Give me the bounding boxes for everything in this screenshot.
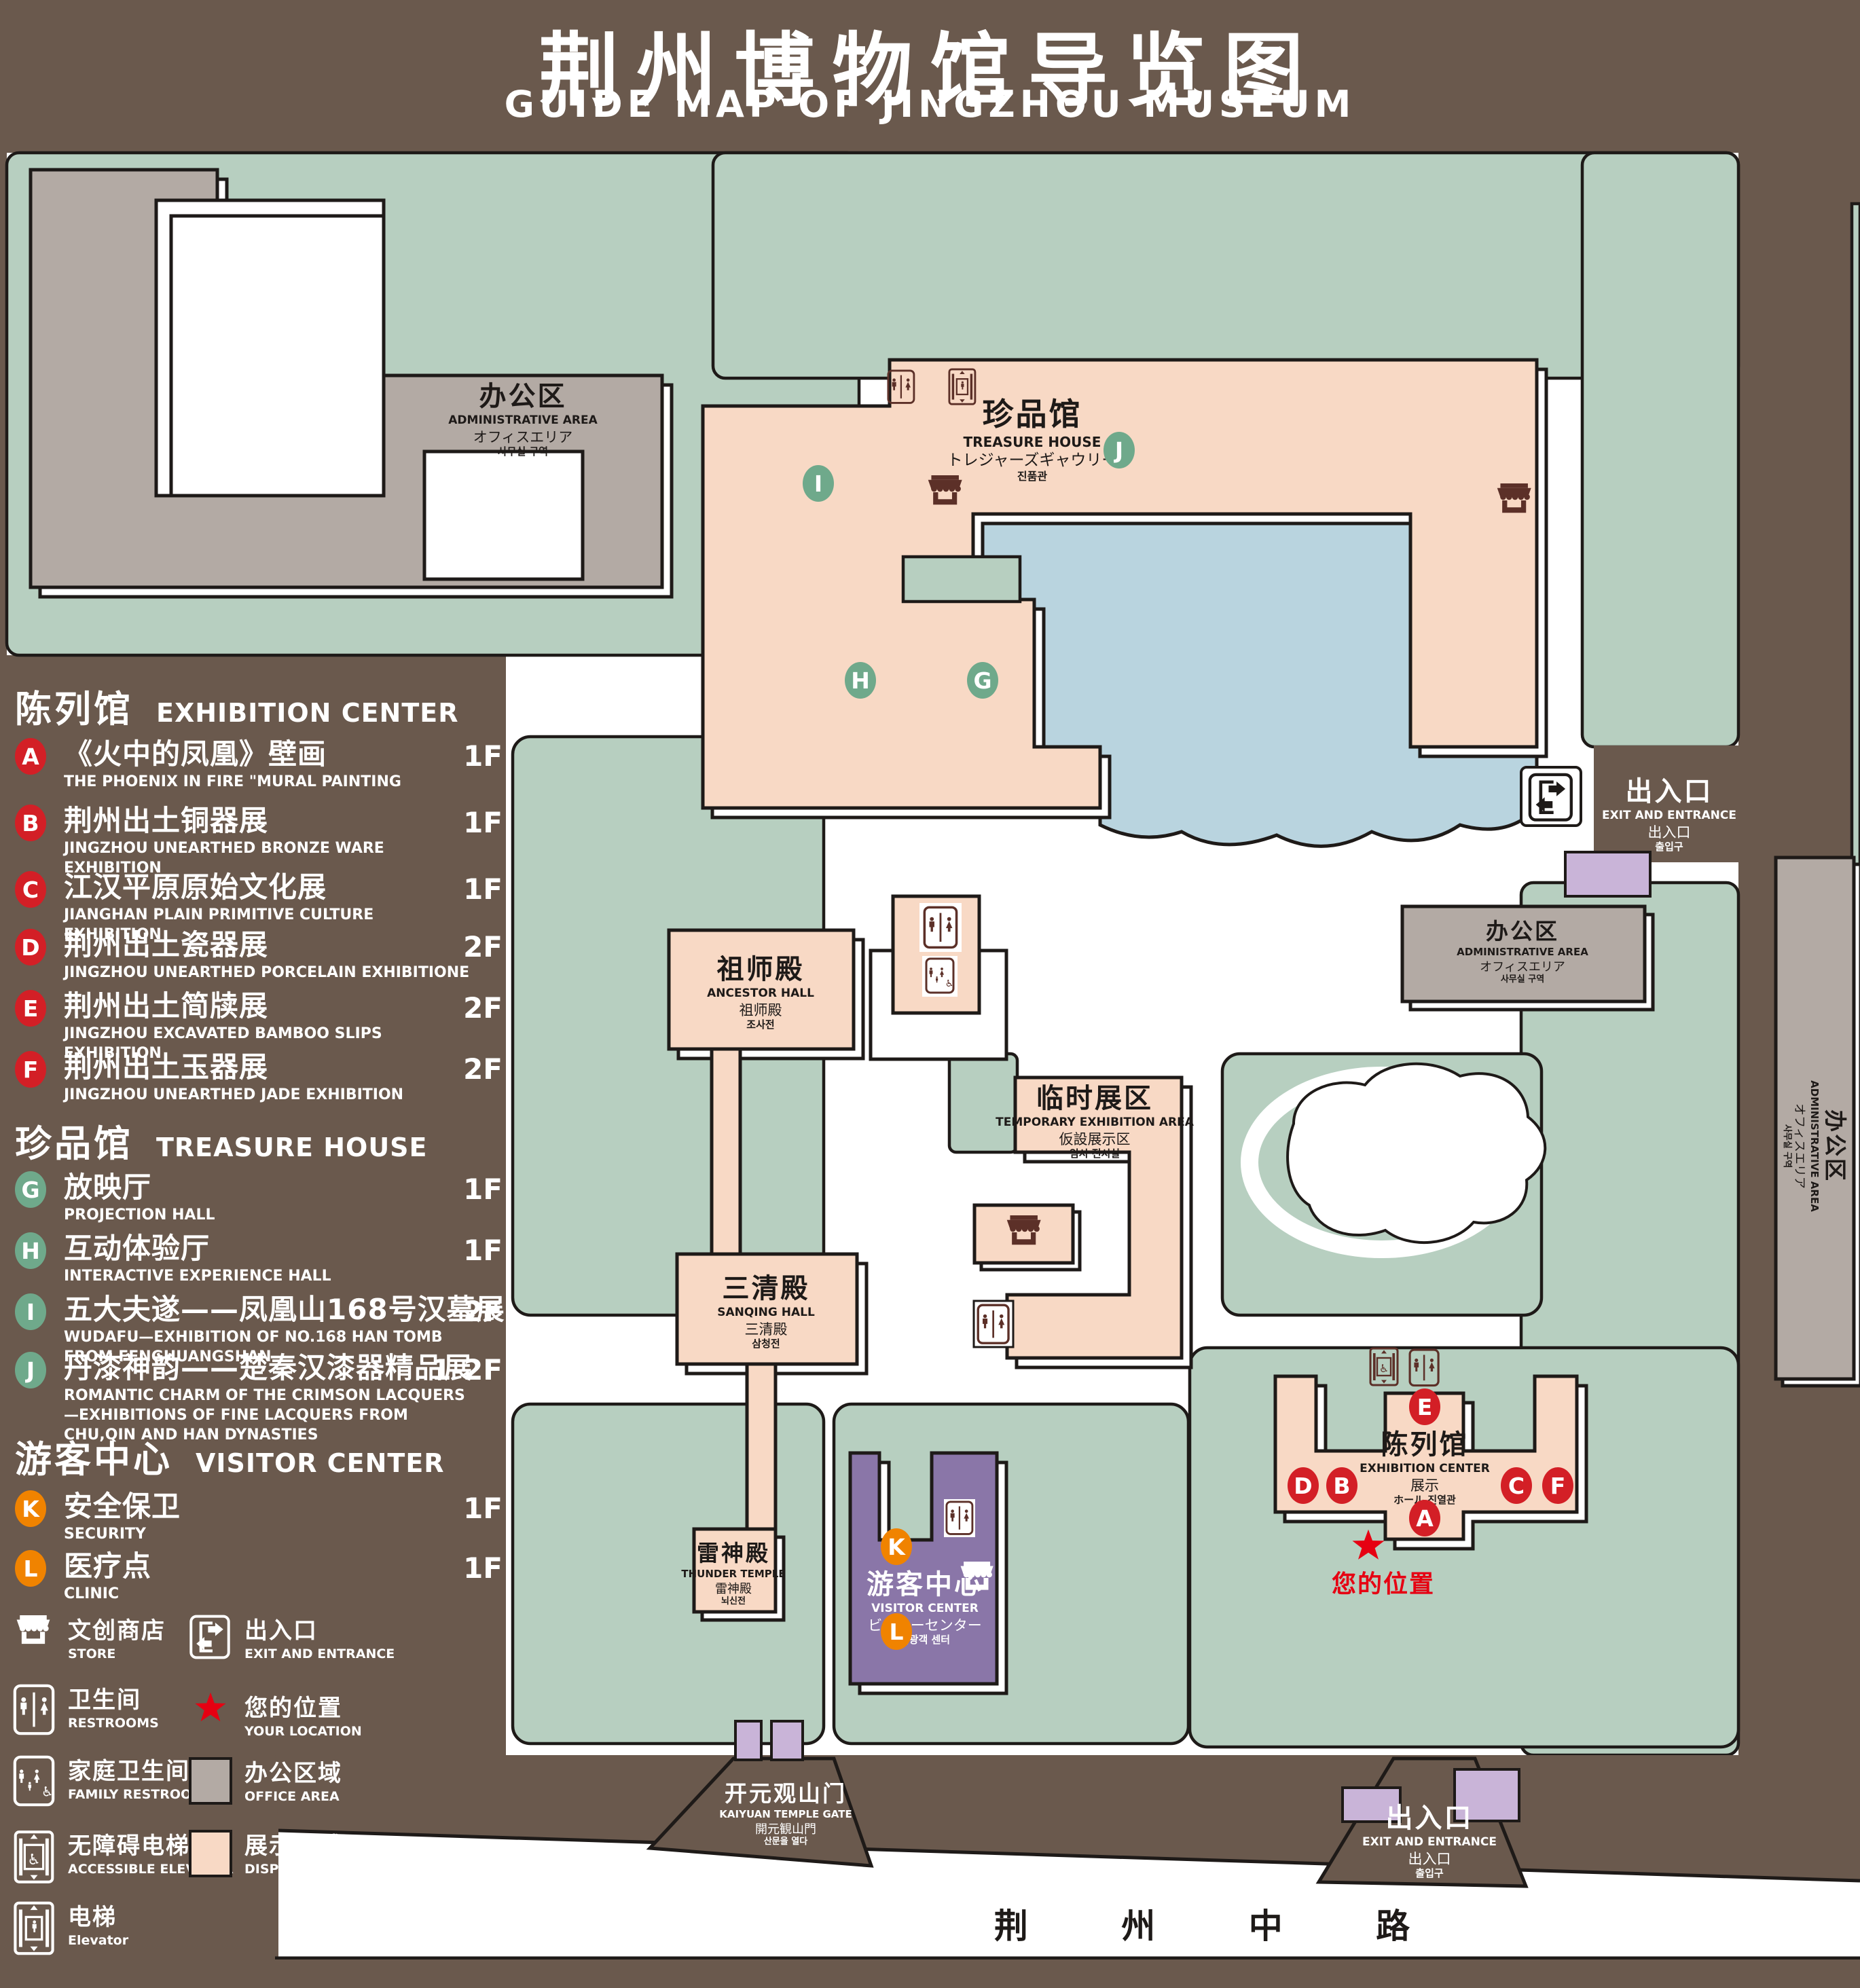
legend-item-text: 互动体验厅INTERACTIVE EXPERIENCE HALL: [64, 1231, 471, 1286]
legend-item-subtitle: SECURITY: [64, 1524, 471, 1544]
legend-item-subtitle: INTERACTIVE EXPERIENCE HALL: [64, 1266, 471, 1286]
legend-symbol-label: 电梯Elevator: [68, 1902, 128, 1949]
map-badge-C: C: [1501, 1467, 1532, 1504]
map-label-line: 사무실 구역: [448, 446, 597, 458]
legend-symbol-en: DISPLAY AREA: [244, 1861, 348, 1878]
map-badge-G: G: [967, 662, 998, 699]
legend-item-floor: 1F: [463, 806, 503, 839]
legend-item-title: 互动体验厅: [64, 1231, 471, 1266]
family-restroom-icon: [12, 1755, 56, 1809]
legend-item-floor: 2F: [463, 930, 503, 963]
map-label-line: 出入口: [1362, 1852, 1497, 1868]
legend-symbol-en: EXIT AND ENTRANCE: [244, 1646, 395, 1663]
map-label-admin-area-strip: 办公区ADMINISTRATIVE AREAオフィスエリア사무실 구역: [1782, 1080, 1847, 1212]
map-label-line: 출입구: [1362, 1868, 1497, 1879]
location-star-icon: [194, 1692, 227, 1726]
map-label-line: KAIYUAN TEMPLE GATE: [719, 1809, 852, 1820]
legend-item-badge: K: [15, 1490, 46, 1527]
map-label-line: ADMINISTRATIVE AREA: [448, 414, 597, 427]
legend-item-H: H互动体验厅INTERACTIVE EXPERIENCE HALL1F: [15, 1231, 503, 1286]
map-label-ancestor-hall: 祖师殿ANCESTOR HALL祖师殿조사전: [707, 955, 814, 1031]
map-badge-A: A: [1409, 1500, 1440, 1536]
map-label-sanqing-hall: 三清殿SANQING HALL三清殿삼청전: [717, 1274, 815, 1350]
road-label: 荆 州 中 路: [994, 1899, 1451, 1948]
map-label-line: 사무실 구역: [1457, 975, 1588, 985]
legend-item-floor: 1F: [463, 1551, 503, 1585]
map-label-exhibition-center: 陈列馆EXHIBITION CENTER展示ホール 진열관: [1360, 1430, 1490, 1506]
legend-symbol-label: 卫生间RESTROOMS: [68, 1685, 159, 1732]
garden: [1250, 1064, 1545, 1249]
legend-item-badge: L: [15, 1550, 46, 1587]
corridor: [712, 1049, 740, 1256]
map-label-line: SANQING HALL: [717, 1306, 815, 1319]
your-location-label: 您的位置: [1332, 1564, 1435, 1600]
gate-pillar: [771, 1721, 803, 1760]
map-label-line: 祖师殿: [707, 955, 814, 985]
map-label-line: 祖师殿: [707, 1003, 814, 1019]
map-label-line: 삼청전: [717, 1338, 815, 1350]
road: [275, 1959, 1860, 1988]
legend-item-badge: E: [15, 990, 46, 1027]
legend-symbol-label: 您的位置YOUR LOCATION: [244, 1693, 362, 1740]
map-label-line: 仮設展示区: [996, 1132, 1194, 1148]
map-label-line: 조사전: [707, 1019, 814, 1031]
map-badge-F: F: [1542, 1467, 1573, 1504]
legend-item-floor: 2F: [463, 1295, 503, 1328]
map-label-line: TREASURE HOUSE: [947, 435, 1118, 449]
legend-item-badge: A: [15, 738, 46, 775]
map-badge-K: K: [881, 1528, 912, 1565]
legend-symbol-en: OFFICE AREA: [244, 1788, 342, 1805]
map-label-line: 临时展区: [996, 1084, 1194, 1114]
map-label-line: トレジャーズギャウリー: [947, 452, 1118, 470]
legend-item-subtitle: PROJECTION HALL: [64, 1205, 471, 1225]
map-label-line: 办公区: [448, 382, 597, 412]
legend-item-text: 荆州出土瓷器展JINGZHOU UNEARTHED PORCELAIN EXHI…: [64, 927, 471, 982]
annex-building: [1565, 852, 1650, 896]
map-label-line: THUNDER TEMPLE: [681, 1568, 785, 1580]
map-label-line: 办公区: [1822, 1080, 1847, 1212]
map-label-line: EXHIBITION CENTER: [1360, 1462, 1490, 1475]
legend-item-F: F荆州出土玉器展JINGZHOU UNEARTHED JADE EXHIBITI…: [15, 1050, 503, 1105]
legend-item-floor: 1F: [463, 872, 503, 906]
legend-symbol-cn: 展示区域: [244, 1831, 348, 1861]
legend-section-header: 陈列馆EXHIBITION CENTER: [15, 679, 458, 733]
legend-item-badge: G: [15, 1171, 46, 1208]
legend-item-badge: H: [15, 1232, 46, 1269]
map-label-line: 三清殿: [717, 1274, 815, 1304]
legend-item-title: 五大夫遂——凤凰山168号汉墓展: [64, 1292, 471, 1327]
legend-symbol-cn: 出入口: [244, 1616, 395, 1646]
map-label-line: 办公区: [1457, 919, 1588, 944]
accessible-elevator-icon: [14, 1830, 54, 1887]
legend-symbol-en: RESTROOMS: [68, 1715, 159, 1732]
map-label-line: オフィスエリア: [1457, 961, 1588, 974]
legend-item-G: G放映厅PROJECTION HALL1F: [15, 1170, 503, 1225]
map-badge-J: J: [1104, 432, 1135, 468]
legend-item-K: K安全保卫SECURITY1F: [15, 1489, 503, 1544]
map-badge-B: B: [1326, 1467, 1357, 1504]
map-label-line: 三清殿: [717, 1322, 815, 1338]
legend-section-title-en: EXHIBITION CENTER: [156, 698, 458, 728]
elevator-icon: [12, 1901, 56, 1958]
map-label-exit-top-right: 出入口EXIT AND ENTRANCE出入口출입구: [1602, 777, 1736, 853]
map-label-line: オフィスエリア: [448, 430, 597, 446]
legend-section-title-cn: 陈列馆: [15, 679, 133, 733]
map-label-line: EXIT AND ENTRANCE: [1362, 1836, 1497, 1849]
map-badge-D: D: [1288, 1467, 1319, 1504]
map-label-line: TEMPORARY EXHIBITION AREA: [996, 1116, 1194, 1129]
garden-pond: [1288, 1064, 1545, 1242]
map-label-line: ANCESTOR HALL: [707, 987, 814, 1000]
legend-item-title: 《火中的凤凰》壁画: [64, 737, 471, 772]
store-icon: [1497, 483, 1531, 513]
legend-item-badge: C: [15, 871, 46, 908]
map-label-exit-bottom-right: 出入口EXIT AND ENTRANCE出入口출입구: [1362, 1803, 1497, 1879]
legend-symbol-cn: 电梯: [68, 1902, 128, 1932]
map-label-treasure-house: 珍品馆TREASURE HOUSEトレジャーズギャウリー진품관: [947, 397, 1118, 483]
legend-item-title: 荆州出土瓷器展: [64, 927, 471, 963]
exit-icon: [189, 1615, 231, 1662]
legend-section-title-cn: 珍品馆: [15, 1113, 133, 1167]
legend-item-title: 荆州出土玉器展: [64, 1050, 471, 1085]
map-badge-I: I: [803, 465, 834, 502]
legend-symbol-cn: 卫生间: [68, 1685, 159, 1715]
map-label-line: 임시 전시실: [996, 1148, 1194, 1160]
legend-symbol-cn: 文创商店: [68, 1616, 166, 1646]
map-label-admin-area-topleft: 办公区ADMINISTRATIVE AREAオフィスエリア사무실 구역: [448, 382, 597, 458]
legend-symbol-label: 文创商店STORE: [68, 1616, 166, 1663]
legend-item-floor: 1F: [463, 1173, 503, 1206]
legend-item-title: 荆州出土简牍展: [64, 989, 471, 1024]
map-label-line: 雷神殿: [681, 1541, 785, 1566]
store-icon: [14, 1615, 53, 1653]
corridor: [747, 1364, 776, 1530]
map-label-line: VISITOR CENTER: [867, 1602, 983, 1615]
map-label-line: 游客中心: [867, 1570, 983, 1600]
legend-item-floor: 2F: [463, 991, 503, 1025]
legend-section-title-en: VISITOR CENTER: [196, 1448, 445, 1478]
map-label-temporary-exhibition: 临时展区TEMPORARY EXHIBITION AREA仮設展示区임시 전시실: [996, 1084, 1194, 1160]
legend-item-title: 放映厅: [64, 1170, 471, 1205]
legend-symbol-label: 出入口EXIT AND ENTRANCE: [244, 1616, 395, 1663]
legend-item-floor: 2F: [463, 1052, 503, 1086]
map-label-line: オフィスエリア: [1792, 1080, 1806, 1212]
legend-symbol-label: 展示区域DISPLAY AREA: [244, 1831, 348, 1878]
legend-item-L: L医疗点CLINIC1F: [15, 1549, 503, 1604]
legend-item-text: 荆州出土铜器展JINGZHOU UNEARTHED BRONZE WARE EX…: [64, 803, 471, 878]
legend-item-floor: 1F: [463, 1234, 503, 1267]
map-label-line: 陈列馆: [1360, 1430, 1490, 1460]
map-label-line: 출입구: [1602, 841, 1736, 853]
legend-item-text: 医疗点CLINIC: [64, 1549, 471, 1604]
legend-item-floor: 1F: [463, 1492, 503, 1525]
map-label-kaiyuan-gate: 开元观山门KAIYUAN TEMPLE GATE開元観山門산문을 열다: [719, 1782, 852, 1847]
legend-item-D: D荆州出土瓷器展JINGZHOU UNEARTHED PORCELAIN EXH…: [15, 927, 503, 982]
restroom-icon: [12, 1684, 56, 1738]
legend-symbol-cn: 办公区域: [244, 1759, 342, 1788]
map-label-line: 雷神殿: [681, 1583, 785, 1596]
legend-item-subtitle: CLINIC: [64, 1584, 471, 1604]
map-label-admin-area-right: 办公区ADMINISTRATIVE AREAオフィスエリア사무실 구역: [1457, 919, 1588, 984]
legend-symbol-en: YOUR LOCATION: [244, 1723, 362, 1740]
legend-item-badge: F: [15, 1051, 46, 1088]
map-label-line: 사무실 구역: [1782, 1080, 1792, 1212]
legend-symbol-cn: 您的位置: [244, 1693, 362, 1723]
map-label-line: ADMINISTRATIVE AREA: [1808, 1080, 1820, 1212]
legend-item-text: 安全保卫SECURITY: [64, 1489, 471, 1544]
store-icon: [1007, 1215, 1041, 1245]
legend-symbol-en: STORE: [68, 1646, 166, 1663]
legend-item-title: 江汉平原原始文化展: [64, 870, 471, 905]
map-badge-H: H: [845, 662, 876, 699]
map-label-line: 出入口: [1362, 1803, 1497, 1834]
legend-section-header: 珍品馆TREASURE HOUSE: [15, 1113, 428, 1167]
legend-item-title: 医疗点: [64, 1549, 471, 1584]
legend-item-floor: 1F: [463, 739, 503, 773]
legend-item-badge: D: [15, 929, 46, 965]
legend-item-title: 安全保卫: [64, 1489, 471, 1524]
office-area-swatch: [189, 1757, 232, 1805]
legend-item-text: 荆州出土玉器展JINGZHOU UNEARTHED JADE EXHIBITIO…: [64, 1050, 471, 1105]
legend-item-subtitle: JINGZHOU UNEARTHED PORCELAIN EXHIBITIONE: [64, 963, 471, 982]
map-label-line: 산문을 열다: [719, 1837, 852, 1847]
map-label-line: 珍品馆: [947, 397, 1118, 432]
legend-section-title-en: TREASURE HOUSE: [156, 1133, 428, 1162]
map-label-line: 開元観山門: [719, 1823, 852, 1837]
legend-item-floor: 1-2F: [431, 1353, 503, 1386]
legend-item-subtitle: JINGZHOU UNEARTHED JADE EXHIBITION: [64, 1085, 471, 1105]
map-badge-L: L: [881, 1613, 912, 1650]
legend-item-B: B荆州出土铜器展JINGZHOU UNEARTHED BRONZE WARE E…: [15, 803, 503, 878]
map-label-line: 진품관: [947, 471, 1118, 483]
map-label-line: 出入口: [1602, 777, 1736, 807]
legend-item-subtitle: THE PHOENIX IN FIRE "MURAL PAINTING: [64, 772, 471, 792]
map-label-line: ADMINISTRATIVE AREA: [1457, 946, 1588, 958]
legend-section-title-cn: 游客中心: [15, 1429, 172, 1483]
legend-item-badge: B: [15, 805, 46, 841]
legend-item-badge: J: [15, 1352, 46, 1388]
legend-symbol-label: 办公区域OFFICE AREA: [244, 1759, 342, 1805]
legend-item-text: 《火中的凤凰》壁画THE PHOENIX IN FIRE "MURAL PAIN…: [64, 737, 471, 792]
map-badge-E: E: [1409, 1388, 1440, 1425]
map-label-line: 出入口: [1602, 825, 1736, 841]
legend-symbol-en: Elevator: [68, 1932, 128, 1949]
legend-item-A: A《火中的凤凰》壁画THE PHOENIX IN FIRE "MURAL PAI…: [15, 737, 503, 792]
display-area-swatch: [189, 1830, 232, 1877]
map-label-line: 开元观山门: [719, 1782, 852, 1807]
map-label-line: EXIT AND ENTRANCE: [1602, 809, 1736, 822]
legend-item-title: 荆州出土铜器展: [64, 803, 471, 839]
legend-item-badge: I: [15, 1293, 46, 1330]
legend-item-title: 丹漆神韵——楚秦汉漆器精品展: [64, 1350, 471, 1386]
map-label-line: 展示: [1360, 1478, 1490, 1494]
map-label-line: 뇌신전: [681, 1597, 785, 1607]
gate-pillar: [735, 1721, 761, 1760]
legend-item-text: 放映厅PROJECTION HALL: [64, 1170, 471, 1225]
map-label-thunder-temple: 雷神殿THUNDER TEMPLE雷神殿뇌신전: [681, 1541, 785, 1606]
legend-section-header: 游客中心VISITOR CENTER: [15, 1429, 445, 1483]
